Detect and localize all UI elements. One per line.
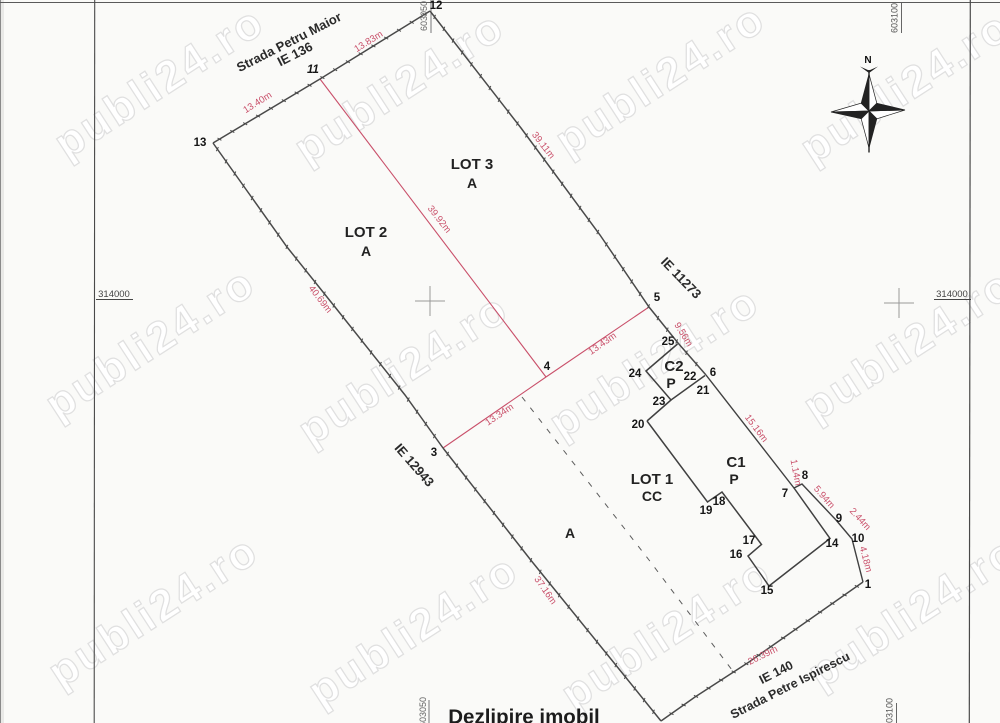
svg-text:publi24.ro: publi24.ro [299,544,527,716]
svg-text:Dezlipire imobil: Dezlipire imobil [448,706,600,723]
svg-text:603050: 603050 [418,697,428,723]
svg-text:LOT 1: LOT 1 [631,471,674,488]
svg-text:A: A [361,243,371,259]
svg-text:4: 4 [544,361,551,373]
svg-text:5: 5 [654,292,661,304]
svg-text:20: 20 [632,419,645,431]
svg-text:publi24.ro: publi24.ro [36,257,264,429]
svg-text:11: 11 [307,64,319,76]
svg-text:6: 6 [710,367,716,379]
svg-text:3: 3 [431,447,437,459]
svg-text:C1: C1 [726,454,745,471]
svg-text:9: 9 [836,513,842,525]
svg-text:LOT 2: LOT 2 [345,224,388,241]
svg-text:7: 7 [782,488,788,500]
svg-text:22: 22 [684,371,697,383]
svg-text:14: 14 [826,538,839,550]
svg-text:13.40m: 13.40m [241,90,274,116]
svg-text:13.43m: 13.43m [586,330,618,357]
svg-text:19: 19 [700,505,713,517]
svg-text:10: 10 [852,533,865,545]
svg-text:314000: 314000 [936,289,968,300]
svg-text:A: A [467,175,477,191]
svg-text:21: 21 [697,385,710,397]
svg-text:LOT 3: LOT 3 [451,156,494,173]
svg-text:publi24.ro: publi24.ro [546,0,774,165]
svg-text:publi24.ro: publi24.ro [39,525,267,697]
svg-text:314000: 314000 [98,289,130,300]
svg-text:C2: C2 [664,358,683,375]
svg-text:1: 1 [865,579,872,591]
svg-text:P: P [729,471,738,487]
svg-text:23: 23 [653,396,666,408]
svg-text:12: 12 [430,0,443,12]
svg-text:15: 15 [761,585,774,597]
svg-text:A: A [565,525,575,541]
svg-text:603050: 603050 [419,1,429,31]
svg-text:13.34m: 13.34m [483,401,515,428]
svg-text:17: 17 [743,535,756,547]
svg-text:603100: 603100 [885,698,895,723]
svg-text:N: N [864,55,871,66]
svg-text:CC: CC [642,488,662,504]
svg-text:603100: 603100 [890,3,900,33]
svg-text:publi24.ro: publi24.ro [45,0,273,168]
svg-text:39.92m: 39.92m [425,204,453,236]
svg-text:16: 16 [730,549,743,561]
svg-text:24: 24 [629,368,642,380]
svg-text:18: 18 [713,496,726,508]
svg-text:IE 11273: IE 11273 [658,254,704,301]
svg-text:P: P [666,375,675,391]
svg-text:25: 25 [662,336,675,348]
svg-text:13: 13 [194,137,207,149]
svg-text:26.39m: 26.39m [746,644,779,668]
svg-text:publi24.ro: publi24.ro [552,547,780,719]
svg-text:2.44m: 2.44m [847,506,873,533]
